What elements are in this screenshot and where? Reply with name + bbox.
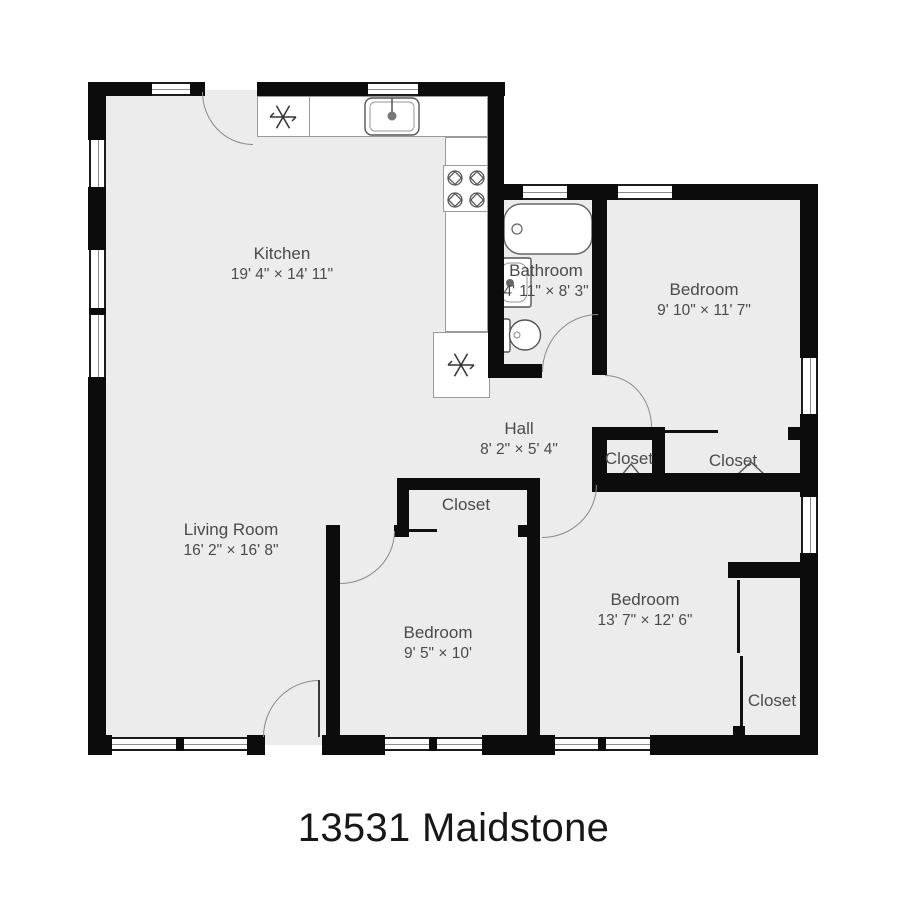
room-label-bedroom-tr: Bedroom 9' 10" × 11' 7" bbox=[657, 279, 751, 321]
floor-plan: Kitchen 19' 4" × 14' 11" Living Room 16'… bbox=[0, 0, 907, 900]
window bbox=[368, 82, 418, 96]
window-mullion bbox=[176, 737, 184, 751]
window bbox=[523, 184, 567, 200]
wall-segment bbox=[650, 735, 818, 755]
room-name: Hall bbox=[480, 418, 558, 440]
room-dims: 9' 5" × 10' bbox=[404, 644, 473, 664]
window-mullion bbox=[89, 308, 106, 315]
window bbox=[152, 82, 190, 96]
wall-segment bbox=[322, 735, 385, 755]
room-label-closet-br: Closet bbox=[748, 690, 796, 712]
wall-segment bbox=[672, 184, 818, 200]
room-dims: 16' 2" × 16' 8" bbox=[184, 541, 279, 561]
sliding-door-panel bbox=[737, 580, 740, 653]
wall-segment bbox=[88, 187, 106, 250]
wall-closet-middle-top bbox=[397, 478, 540, 490]
closet-front-line bbox=[409, 529, 437, 532]
room-label-hall: Hall 8' 2" × 5' 4" bbox=[480, 418, 558, 460]
wall-jamb bbox=[394, 525, 409, 537]
room-dims: 4' 11" × 8' 3" bbox=[503, 282, 588, 302]
wall-segment bbox=[800, 553, 818, 755]
room-label-closet-tr: Closet bbox=[709, 450, 757, 472]
room-dims: 19' 4" × 14' 11" bbox=[231, 265, 333, 285]
room-name: Kitchen bbox=[231, 243, 333, 265]
room-label-bathroom: Bathroom 4' 11" × 8' 3" bbox=[503, 260, 588, 302]
refrigerator bbox=[257, 96, 310, 137]
stove bbox=[443, 165, 488, 212]
room-label-kitchen: Kitchen 19' 4" × 14' 11" bbox=[231, 243, 333, 285]
wall-jamb bbox=[518, 525, 540, 537]
room-name: Bathroom bbox=[503, 260, 588, 282]
wall-livingroom-bedroom bbox=[326, 525, 340, 738]
wall-segment bbox=[88, 82, 106, 140]
room-dims: 9' 10" × 11' 7" bbox=[657, 301, 751, 321]
wall-segment bbox=[800, 184, 818, 358]
window bbox=[801, 497, 818, 553]
room-label-closet-hall: Closet bbox=[605, 448, 653, 470]
room-name: Closet bbox=[709, 450, 757, 472]
wall-segment bbox=[257, 82, 368, 96]
wall-hall-bottom bbox=[592, 473, 818, 492]
plan-title: 13531 Maidstone bbox=[0, 806, 907, 851]
wall-closet-br-top bbox=[728, 562, 818, 578]
room-label-bedroom-mid: Bedroom 9' 5" × 10' bbox=[404, 622, 473, 664]
wall-segment bbox=[88, 735, 112, 755]
room-name: Living Room bbox=[184, 519, 279, 541]
room-label-bedroom-br: Bedroom 13' 7" × 12' 6" bbox=[598, 589, 693, 631]
door-leaf-front bbox=[318, 680, 320, 737]
wall-segment bbox=[247, 735, 265, 755]
window-mullion bbox=[598, 737, 606, 751]
room-name: Bedroom bbox=[404, 622, 473, 644]
window bbox=[618, 184, 672, 200]
room-name: Bedroom bbox=[657, 279, 751, 301]
room-label-living-room: Living Room 16' 2" × 16' 8" bbox=[184, 519, 279, 561]
wall-segment bbox=[482, 735, 555, 755]
room-dims: 13' 7" × 12' 6" bbox=[598, 611, 693, 631]
wall-jamb bbox=[733, 726, 745, 738]
wall-segment bbox=[418, 82, 505, 96]
room-name: Closet bbox=[442, 494, 490, 516]
room-name: Closet bbox=[748, 690, 796, 712]
room-label-closet-mid: Closet bbox=[442, 494, 490, 516]
sliding-door-panel bbox=[740, 656, 743, 732]
wall-bedroom-divider bbox=[527, 478, 540, 738]
room-name: Bedroom bbox=[598, 589, 693, 611]
wall-jamb bbox=[788, 427, 803, 440]
wall-segment bbox=[567, 184, 618, 200]
room-name: Closet bbox=[605, 448, 653, 470]
window bbox=[89, 140, 106, 187]
wall-segment bbox=[88, 377, 106, 755]
room-dims: 8' 2" × 5' 4" bbox=[480, 440, 558, 460]
freezer bbox=[433, 332, 490, 398]
window-mullion bbox=[429, 737, 437, 751]
wall-bathroom-bottom bbox=[488, 364, 542, 378]
window bbox=[801, 358, 818, 414]
wall-kitchen-bathroom bbox=[488, 96, 504, 378]
closet-front-line bbox=[665, 430, 718, 433]
